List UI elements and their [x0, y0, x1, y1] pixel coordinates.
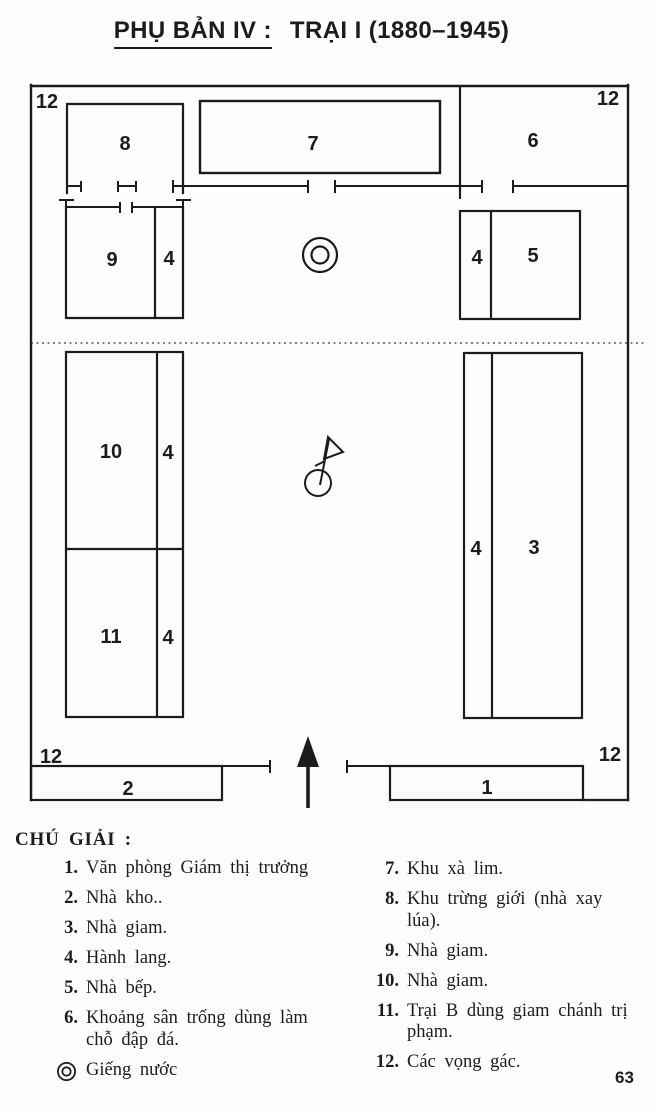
- corridor-label: 4: [162, 627, 174, 649]
- corridor-label: 4: [471, 247, 483, 269]
- building-3-label: 3: [528, 537, 539, 559]
- legend-item: 8. Khu trừng giới (nhà xay lúa).: [367, 889, 657, 932]
- page-number: 63: [615, 1068, 634, 1088]
- building-1-label: 1: [481, 777, 492, 799]
- site-plan: 12 12 12 12 8 7 6 9 4 4 5 10 4 11 4 4 3 …: [0, 80, 659, 815]
- legend-item: 7. Khu xà lim.: [367, 859, 657, 881]
- legend-item-text: Trại B dùng giam chánh trị phạm.: [407, 1001, 635, 1044]
- building-10-label: 10: [100, 441, 122, 463]
- watchtower-label: 12: [40, 746, 62, 768]
- legend-item-text: Khoảng sân trống dùng làm chỗ đập đá.: [86, 1008, 328, 1051]
- legend-item-number: 7.: [367, 859, 399, 881]
- legend-item-number: 11.: [367, 1001, 399, 1044]
- legend-item: 1. Văn phòng Giám thị trưởng: [52, 858, 357, 880]
- building-5-label: 5: [527, 245, 538, 267]
- legend-item-number: 3.: [52, 918, 78, 940]
- inner-wall-north: [67, 181, 628, 192]
- watchtower-label: 12: [36, 91, 58, 113]
- building-2: [31, 761, 270, 800]
- legend-column-right: 7. Khu xà lim. 8. Khu trừng giới (nhà xa…: [367, 859, 657, 1082]
- legend-item-text: Các vọng gác.: [407, 1052, 635, 1074]
- page-title: PHỤ BẢN IV :TRẠI I (1880–1945): [0, 17, 641, 45]
- legend-heading: CHÚ GIẢI :: [15, 829, 132, 851]
- well-icon: [303, 238, 337, 272]
- legend-item-number: 5.: [52, 978, 78, 1000]
- building-11-label: 11: [100, 626, 121, 648]
- legend-item-text: Khu xà lim.: [407, 859, 635, 881]
- legend-item: 11. Trại B dùng giam chánh trị phạm.: [367, 1001, 657, 1044]
- legend-item-text: Hành lang.: [86, 948, 328, 970]
- legend-item-text: Khu trừng giới (nhà xay lúa).: [407, 889, 635, 932]
- legend-item-number: 12.: [367, 1052, 399, 1074]
- legend-item-text: Văn phòng Giám thị trưởng: [86, 858, 328, 880]
- legend-item-number: 9.: [367, 941, 399, 963]
- building-9-label: 9: [106, 249, 117, 271]
- scanned-book-page: PHỤ BẢN IV :TRẠI I (1880–1945): [0, 0, 659, 1112]
- entrance-arrow-icon: [297, 736, 319, 808]
- legend-item-number: 4.: [52, 948, 78, 970]
- title-prefix: PHỤ BẢN IV :: [114, 17, 272, 49]
- legend-item-number: 8.: [367, 889, 399, 932]
- legend-item-number: 1.: [52, 858, 78, 880]
- corridor-label: 4: [162, 442, 174, 464]
- legend-item: 5. Nhà bếp.: [52, 978, 357, 1000]
- legend-item-well: Giếng nước: [52, 1060, 357, 1082]
- legend-item: 2. Nhà kho..: [52, 888, 357, 910]
- legend-item: 10. Nhà giam.: [367, 971, 657, 993]
- building-3: [464, 353, 582, 718]
- corridor-label: 4: [163, 248, 175, 270]
- watchtower-label: 12: [599, 744, 621, 766]
- watchtower-label: 12: [597, 88, 619, 110]
- legend-item: 9. Nhà giam.: [367, 941, 657, 963]
- legend-item-text: Giếng nước: [86, 1060, 328, 1082]
- legend-item-text: Nhà giam.: [407, 941, 635, 963]
- courtyard-6-label: 6: [527, 130, 538, 152]
- well-icon: [52, 1060, 78, 1082]
- building-10-11: [66, 352, 183, 717]
- legend-item: 12. Các vọng gác.: [367, 1052, 657, 1074]
- flag-icon: [305, 437, 343, 496]
- legend-item-number: 2.: [52, 888, 78, 910]
- legend-item-text: Nhà giam.: [86, 918, 328, 940]
- legend-item-text: Nhà kho..: [86, 888, 328, 910]
- building-2-label: 2: [122, 778, 133, 800]
- legend-item: 6. Khoảng sân trống dùng làm chỗ đập đá.: [52, 1008, 357, 1051]
- building-7: [200, 101, 440, 173]
- title-main: TRẠI I (1880–1945): [290, 17, 509, 44]
- legend-item-text: Nhà bếp.: [86, 978, 328, 1000]
- legend-item: 3. Nhà giam.: [52, 918, 357, 940]
- building-7-label: 7: [307, 133, 318, 155]
- legend-item-text: Nhà giam.: [407, 971, 635, 993]
- building-8-label: 8: [119, 133, 130, 155]
- legend-item-number: 6.: [52, 1008, 78, 1051]
- legend-column-left: 1. Văn phòng Giám thị trưởng 2. Nhà kho.…: [52, 858, 357, 1090]
- legend-item: 4. Hành lang.: [52, 948, 357, 970]
- legend-item-number: 10.: [367, 971, 399, 993]
- corridor-label: 4: [470, 538, 482, 560]
